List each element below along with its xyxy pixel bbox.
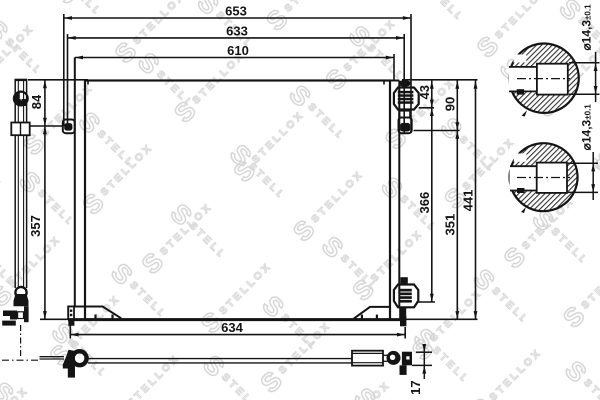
svg-text:17: 17 (408, 380, 423, 394)
svg-text:610: 610 (227, 43, 249, 58)
svg-text:633: 633 (226, 23, 248, 38)
svg-text:84: 84 (29, 94, 44, 109)
svg-text:43: 43 (417, 85, 432, 99)
svg-text:441: 441 (460, 190, 475, 212)
svg-text:366: 366 (417, 192, 432, 214)
svg-text:90: 90 (443, 97, 458, 111)
svg-text:357: 357 (28, 215, 43, 237)
svg-text:653: 653 (225, 4, 247, 19)
svg-text:351: 351 (443, 214, 458, 236)
svg-text:634: 634 (221, 320, 243, 335)
